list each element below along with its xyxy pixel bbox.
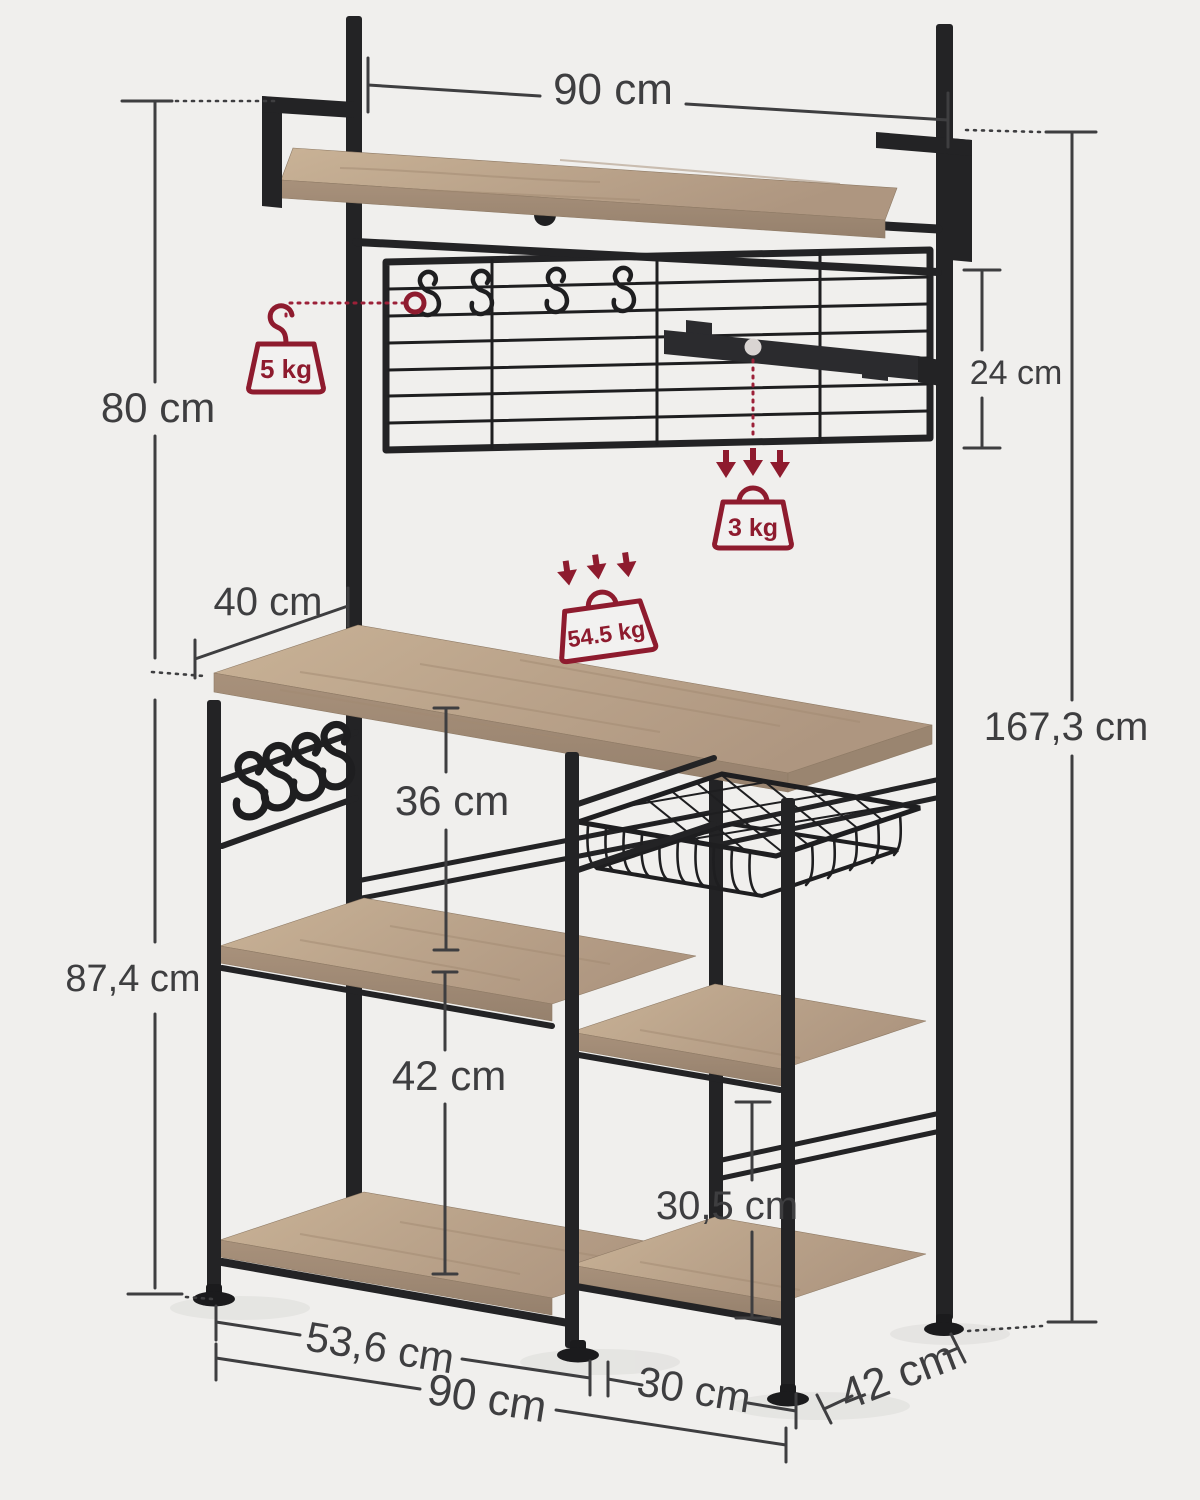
middle-rear-leg bbox=[709, 698, 723, 1254]
dim-label-right-gap: 30,5 cm bbox=[656, 1184, 798, 1228]
dim-label-total-height: 167,3 cm bbox=[984, 705, 1149, 749]
front-left-leg bbox=[207, 700, 221, 1292]
product-dimension-diagram: 90 cm 80 cm 87,4 cm 167,3 cm 24 cm bbox=[0, 0, 1200, 1500]
front-middle-leg bbox=[565, 752, 579, 1348]
right-end-bracket bbox=[950, 138, 972, 262]
down-arrows-icon bbox=[716, 448, 790, 478]
dim-label-worktop-depth: 40 cm bbox=[214, 580, 323, 624]
dim-label-lower-gap: 42 cm bbox=[392, 1052, 506, 1099]
rail-mount-dot bbox=[745, 339, 762, 356]
dim-label-grid-height: 24 cm bbox=[970, 354, 1063, 392]
dim-label-top-width: 90 cm bbox=[553, 65, 673, 114]
dim-label-hutch-height: 80 cm bbox=[101, 384, 215, 431]
dim-label-base-height: 87,4 cm bbox=[65, 958, 200, 1000]
bakers-rack-diagram: 90 cm 80 cm 87,4 cm 167,3 cm 24 cm bbox=[0, 0, 1200, 1500]
dim-label-upper-gap: 36 cm bbox=[395, 777, 509, 824]
rail-load-label: 3 kg bbox=[728, 514, 778, 542]
hook-load-label: 5 kg bbox=[260, 354, 312, 384]
front-right-leg bbox=[781, 798, 795, 1392]
hook-point-marker bbox=[406, 294, 424, 312]
